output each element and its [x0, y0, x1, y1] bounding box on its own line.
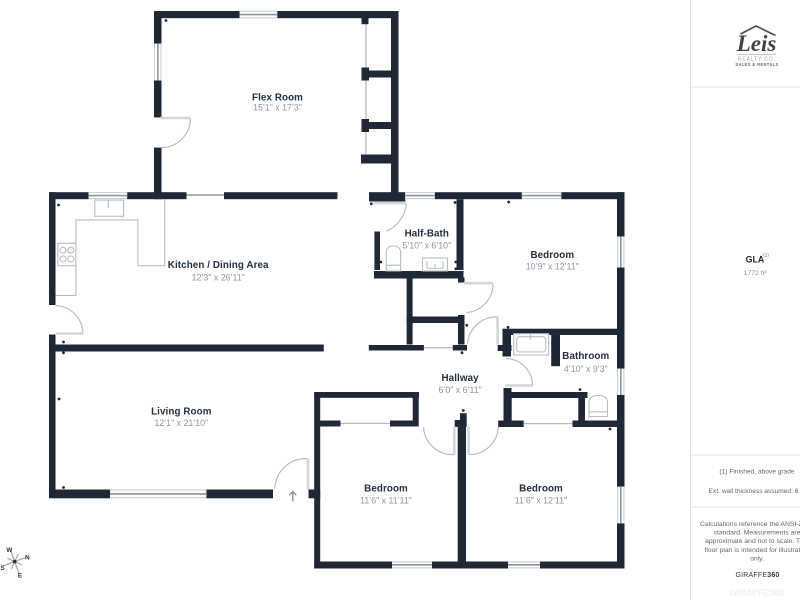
svg-text:only.: only.	[750, 555, 764, 562]
svg-text:GLA: GLA	[746, 255, 765, 265]
svg-text:Leis: Leis	[736, 31, 777, 56]
svg-text:approximate and not to scale.: approximate and not to scale. This	[705, 538, 800, 545]
svg-text:Half-Bath: Half-Bath	[405, 228, 449, 239]
svg-text:Bedroom: Bedroom	[530, 250, 574, 261]
svg-text:Calculations reference the ANS: Calculations reference the ANSI-Z765	[700, 521, 800, 528]
svg-text:4’10" x 9’3": 4’10" x 9’3"	[564, 364, 608, 374]
svg-text:Living Room: Living Room	[151, 407, 212, 418]
svg-text:N: N	[25, 555, 30, 562]
svg-text:Hallway: Hallway	[442, 373, 480, 384]
svg-text:6’0" x 6’11": 6’0" x 6’11"	[438, 385, 481, 395]
svg-text:15’1" x 17’3": 15’1" x 17’3"	[253, 103, 302, 113]
svg-text:GIRAFFE360: GIRAFFE360	[735, 572, 779, 579]
svg-text:W: W	[6, 547, 12, 554]
svg-text:5’10" x 6’10": 5’10" x 6’10"	[402, 240, 451, 250]
svg-text:Bedroom: Bedroom	[519, 483, 563, 494]
svg-text:12’3" x 26’11": 12’3" x 26’11"	[192, 273, 245, 283]
svg-text:10’9" x 12’11": 10’9" x 12’11"	[526, 262, 579, 272]
svg-text:12’1" x 21’10": 12’1" x 21’10"	[154, 418, 208, 428]
svg-text:SALES & RENTALS: SALES & RENTALS	[735, 62, 778, 67]
svg-text:floor plan is intended for ill: floor plan is intended for illustration	[704, 547, 800, 554]
svg-text:S: S	[0, 565, 4, 572]
svg-text:Ext. wall thickness assumed: 6: Ext. wall thickness assumed: 6 in	[709, 488, 800, 495]
svg-text:Kitchen / Dining Area: Kitchen / Dining Area	[168, 260, 269, 271]
svg-text:E: E	[18, 572, 22, 579]
svg-text:Bedroom: Bedroom	[364, 483, 408, 494]
svg-text:1772 ft²: 1772 ft²	[744, 270, 768, 277]
svg-text:GIRAFFE360: GIRAFFE360	[730, 588, 785, 598]
svg-text:standard. Measurements are: standard. Measurements are	[714, 530, 800, 537]
svg-text:(1) Finished, above grade: (1) Finished, above grade	[719, 468, 794, 475]
svg-text:Bathroom: Bathroom	[562, 351, 609, 362]
svg-text:11’6" x 11’11": 11’6" x 11’11"	[360, 496, 412, 506]
svg-text:11’6" x 12’11": 11’6" x 12’11"	[515, 496, 567, 506]
svg-text:(1): (1)	[763, 252, 769, 257]
